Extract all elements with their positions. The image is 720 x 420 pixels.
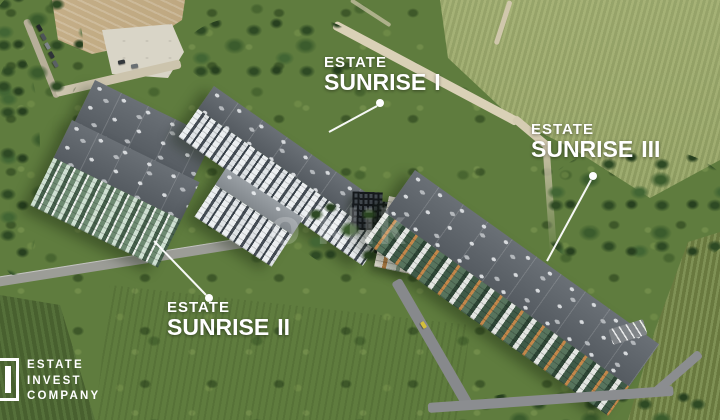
logo-line2: INVEST: [27, 374, 100, 390]
company-logo-text: ESTATE INVEST COMPANY: [27, 358, 100, 405]
label-brand: ESTATE: [531, 122, 660, 137]
label-sunrise-1: ESTATE SUNRISE I: [324, 55, 441, 94]
label-brand: ESTATE: [324, 55, 441, 70]
label-numeral: III: [641, 137, 660, 161]
label-numeral: I: [434, 70, 440, 94]
trees-right-center: [540, 148, 720, 273]
logo-line3: COMPANY: [27, 389, 100, 405]
leader-dot-sunrise1: [376, 99, 384, 107]
dirt-path-top: [350, 0, 392, 27]
label-numeral: II: [277, 315, 290, 339]
company-logo-icon: [0, 358, 19, 401]
label-brand: ESTATE: [167, 300, 290, 315]
label-sunrise-2: ESTATE SUNRISE II: [167, 300, 290, 339]
label-name: SUNRISE: [324, 70, 426, 94]
trees-left-edge: [0, 55, 40, 275]
leader-line-sunrise1: [329, 106, 377, 132]
label-name: SUNRISE: [167, 315, 269, 339]
photo-watermark: o'klik: [270, 198, 510, 256]
aerial-photo: o'klik ESTATE SUNRISE I ESTATE SUNRISE I…: [0, 0, 720, 420]
label-name: SUNRISE: [531, 137, 633, 161]
logo-line1: ESTATE: [27, 358, 100, 374]
label-sunrise-3: ESTATE SUNRISE III: [531, 122, 660, 161]
